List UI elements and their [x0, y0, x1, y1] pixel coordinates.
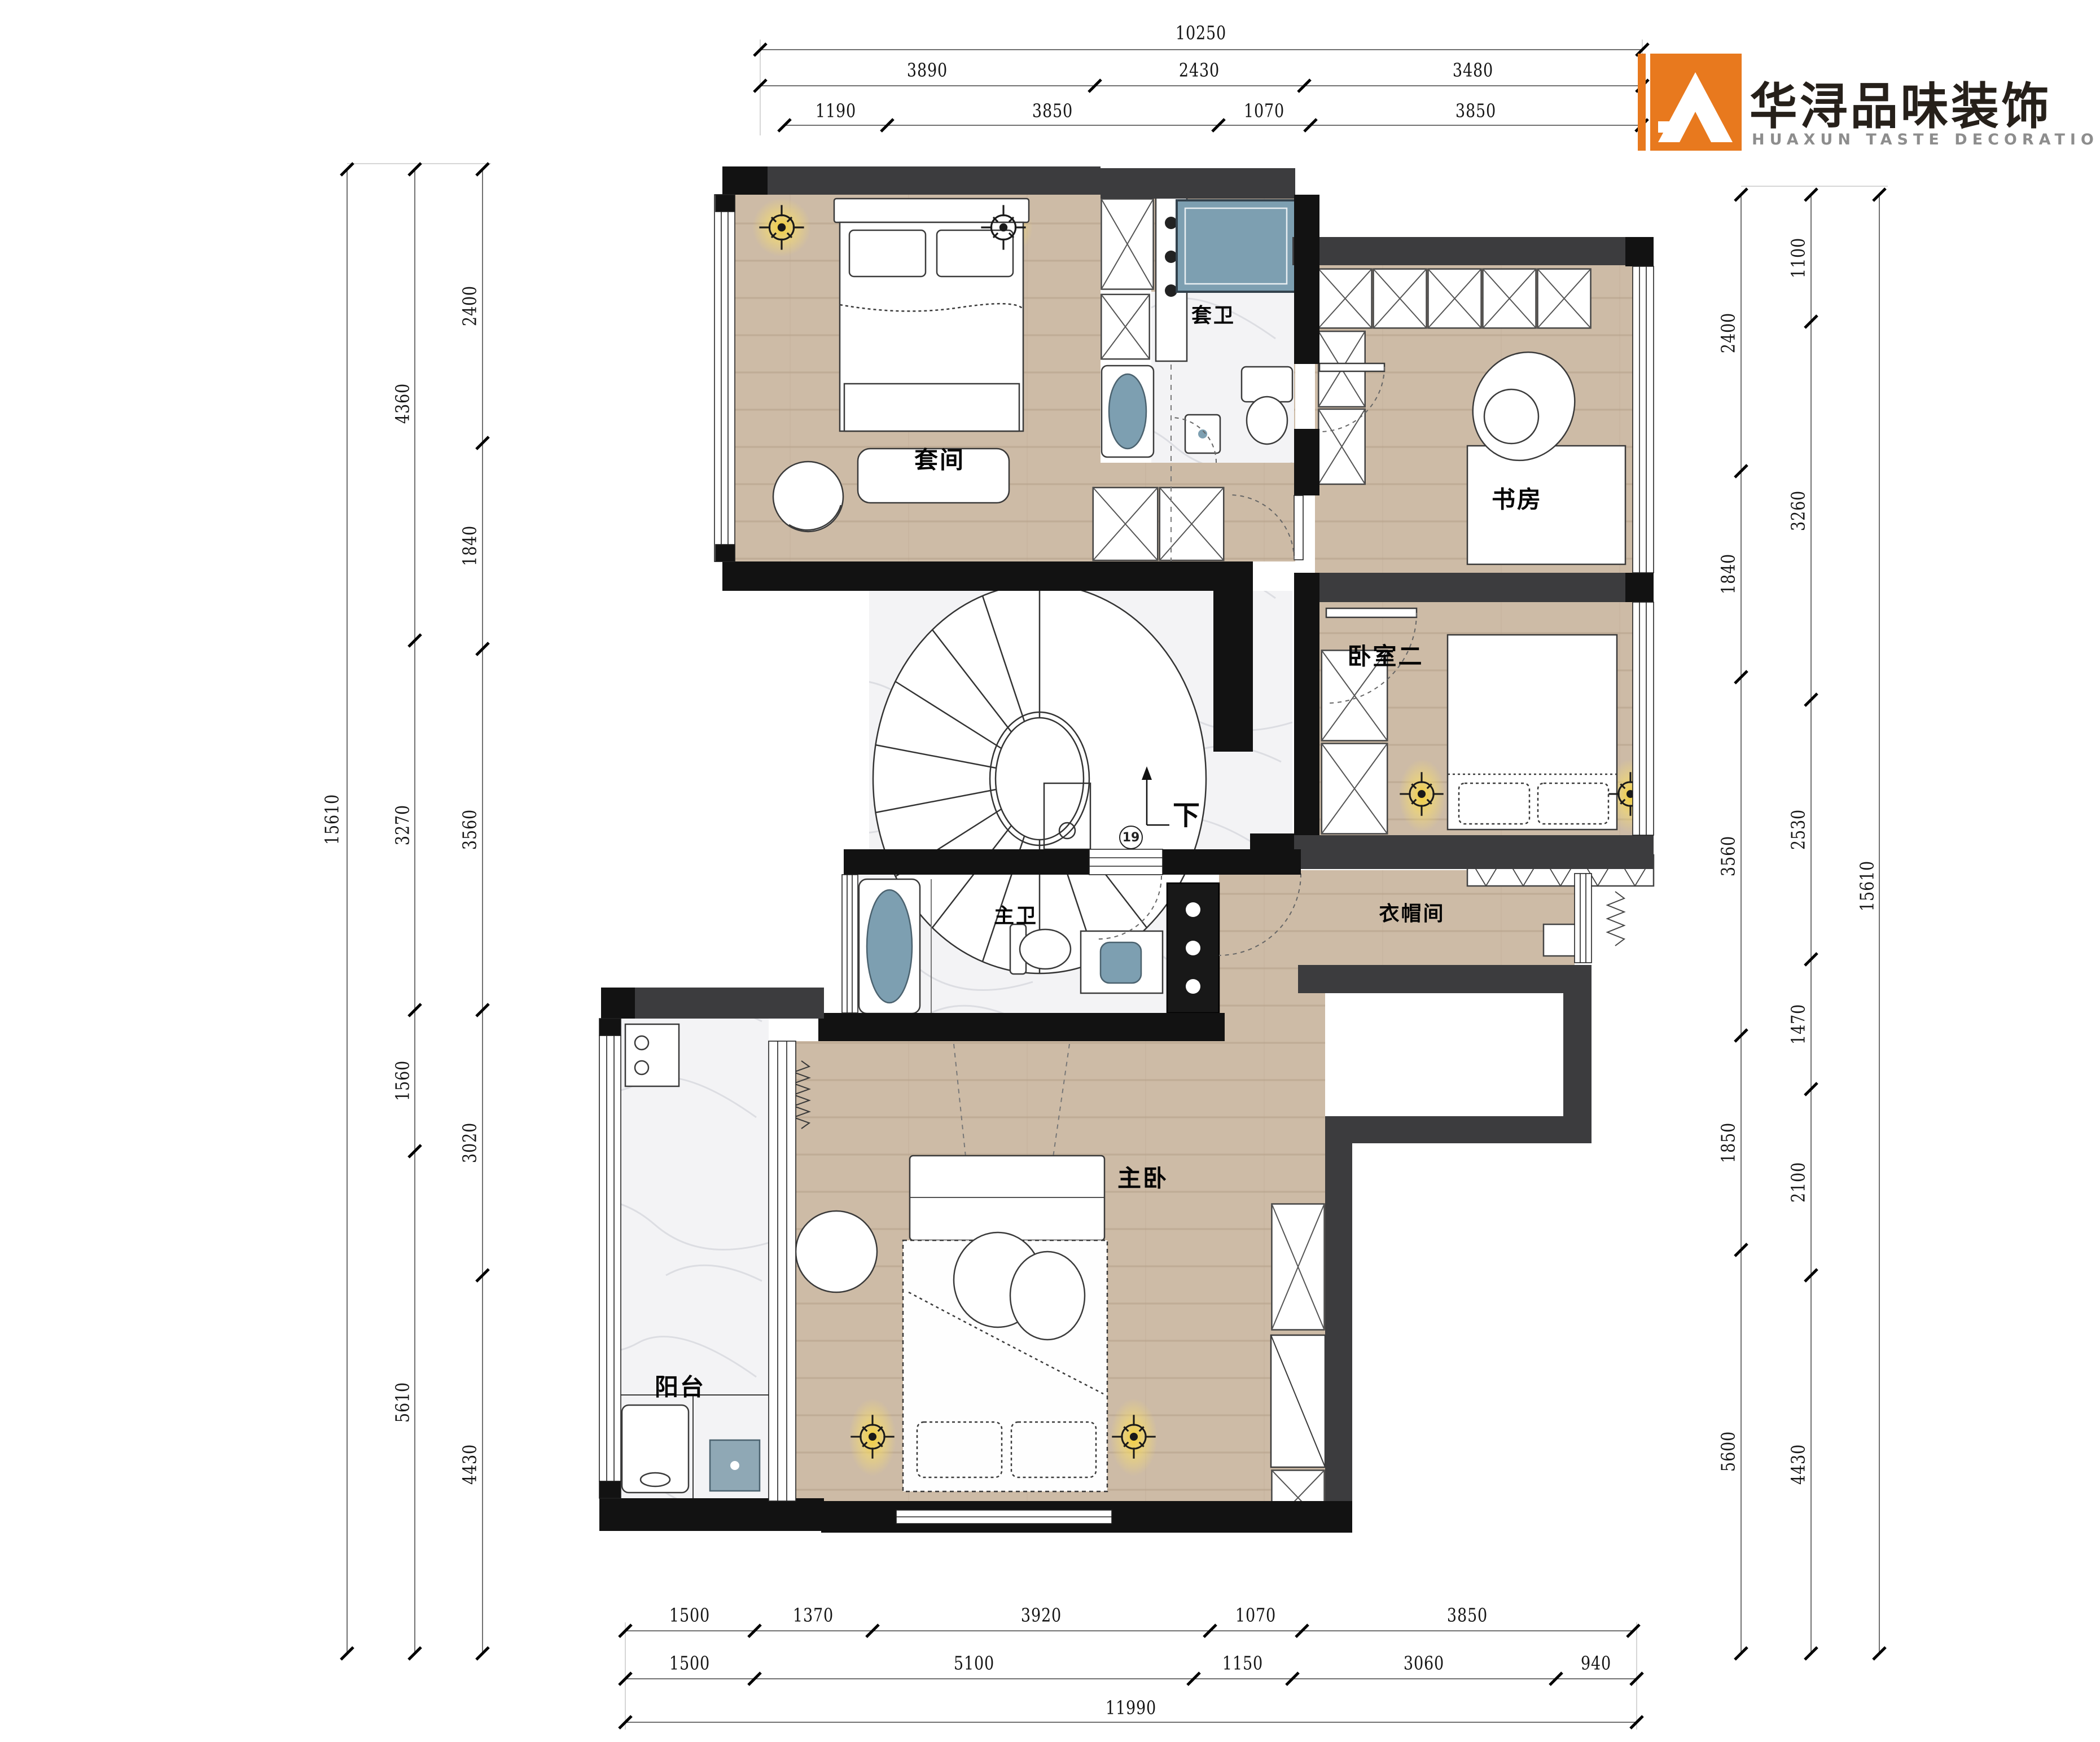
dim-left-total: 15610	[321, 794, 343, 845]
dim-right-mid-5: 2100	[1787, 1162, 1809, 1203]
dim-top-mid-2: 2430	[1179, 59, 1220, 81]
room-label-suite: 套间	[914, 441, 965, 476]
bedroom2-door-leaf	[1326, 608, 1417, 617]
cloak-blind	[1607, 892, 1624, 946]
suite-bed-foot	[844, 384, 1019, 431]
suite-cabinet	[1093, 488, 1158, 560]
dim-bot1-4: 1070	[1235, 1604, 1276, 1626]
dim-right-mid-2: 3260	[1787, 490, 1809, 531]
dim-top-in-3: 1070	[1244, 100, 1284, 122]
dim-left-in-3: 3560	[459, 809, 481, 850]
logo-chinese-name: 华浔品味装饰	[1750, 67, 2052, 138]
dim-bot2-1: 1500	[669, 1652, 710, 1674]
study-cabinet	[1318, 409, 1365, 484]
room-label-balcony: 阳台	[655, 1368, 705, 1403]
dim-left-mid-3: 1560	[392, 1060, 414, 1101]
study-wardrobe	[1537, 269, 1590, 328]
dim-right-in-5: 5600	[1717, 1431, 1739, 1472]
bath-cabinet	[1101, 295, 1149, 359]
dim-right-in-3: 3560	[1717, 836, 1739, 876]
dim-right-total: 15610	[1856, 861, 1878, 911]
dim-top-in-4: 3850	[1455, 100, 1496, 122]
dim-bot2-3: 1150	[1222, 1652, 1263, 1674]
dim-left-mid-4: 5610	[392, 1382, 414, 1423]
study-wardrobe	[1483, 269, 1536, 328]
suite-chair	[773, 462, 843, 532]
spiral-stair	[873, 584, 1206, 973]
suite-bed-headboard	[834, 199, 1029, 222]
dim-top-mid-1: 3890	[907, 59, 948, 81]
balcony-boiler	[625, 1024, 679, 1086]
study-door-leaf	[1319, 363, 1384, 371]
bath-cabinet	[1101, 199, 1153, 289]
dim-left-mid-1: 4360	[392, 383, 414, 424]
dim-left-in-1: 2400	[459, 286, 481, 326]
stair-down-label: 下	[1173, 793, 1200, 832]
dim-bot2-5: 940	[1581, 1652, 1611, 1674]
dim-right-in-4: 1850	[1717, 1122, 1739, 1163]
dim-top-total: 10250	[1176, 22, 1226, 44]
dim-right-in-2: 1840	[1717, 554, 1739, 594]
master-sink	[1101, 942, 1141, 983]
suite-cabinet	[1160, 488, 1224, 560]
master-wardrobe	[1272, 1204, 1324, 1329]
logo-english-name: HUAXUN TASTE DECORATION	[1752, 131, 2100, 148]
dim-top-in-1: 1190	[816, 100, 856, 122]
dim-bot1-1: 1500	[669, 1604, 710, 1626]
dim-right-mid-1: 1100	[1787, 238, 1809, 278]
logo-mark	[1638, 54, 1742, 151]
dim-left-mid-2: 3270	[392, 805, 414, 845]
master-toilet-bowl	[1020, 929, 1071, 969]
suite-pillow	[849, 230, 926, 277]
room-label-bedroom2: 卧室二	[1347, 638, 1423, 672]
master-bench	[910, 1156, 1104, 1240]
bedroom2-bed	[1448, 635, 1617, 830]
stair-step-count-badge: 19	[1119, 826, 1143, 849]
washing-machine	[622, 1405, 689, 1493]
study-wardrobe	[1373, 269, 1426, 328]
room-label-master: 主卧	[1117, 1160, 1168, 1194]
dim-bot1-2: 1370	[793, 1604, 834, 1626]
master-chair	[796, 1211, 877, 1292]
dim-bot2-2: 5100	[954, 1652, 994, 1674]
dim-top-in-2: 3850	[1032, 100, 1073, 122]
dim-right-mid-6: 4430	[1787, 1444, 1809, 1485]
shower	[1177, 200, 1295, 292]
room-label-cloakroom: 衣帽间	[1379, 897, 1445, 927]
dim-bot1-5: 3850	[1447, 1604, 1488, 1626]
dim-right-mid-4: 1470	[1787, 1004, 1809, 1045]
dim-bot2-4: 3060	[1404, 1652, 1444, 1674]
room-label-master-bath: 主卫	[994, 899, 1038, 929]
suite-pillow	[937, 230, 1013, 277]
master-chair	[1010, 1252, 1085, 1340]
toilet-bowl	[1247, 397, 1287, 444]
dim-bot1-3: 3920	[1021, 1604, 1062, 1626]
study-wardrobe	[1428, 269, 1481, 328]
dim-bottom-total: 11990	[1106, 1697, 1156, 1719]
study-wardrobe	[1318, 269, 1371, 328]
floor-plan-page: 10250 3890 2430 3480 1190 3850 1070 3850…	[0, 0, 2100, 1742]
floor-plan-drawing	[0, 0, 2100, 1742]
room-label-study: 书房	[1492, 481, 1542, 515]
dim-right-mid-3: 2530	[1787, 809, 1809, 850]
hall-door-leaf	[1294, 495, 1303, 560]
dim-top-mid-3: 3480	[1453, 59, 1493, 81]
dim-left-in-5: 4430	[459, 1444, 481, 1485]
bedroom2-wardrobe	[1322, 743, 1387, 833]
room-label-suite-bath: 套卫	[1191, 299, 1235, 328]
study-chair-seat	[1484, 389, 1538, 444]
dim-right-in-1: 2400	[1717, 313, 1739, 353]
dim-left-in-4: 3020	[459, 1122, 481, 1163]
dim-left-in-2: 1840	[459, 525, 481, 566]
